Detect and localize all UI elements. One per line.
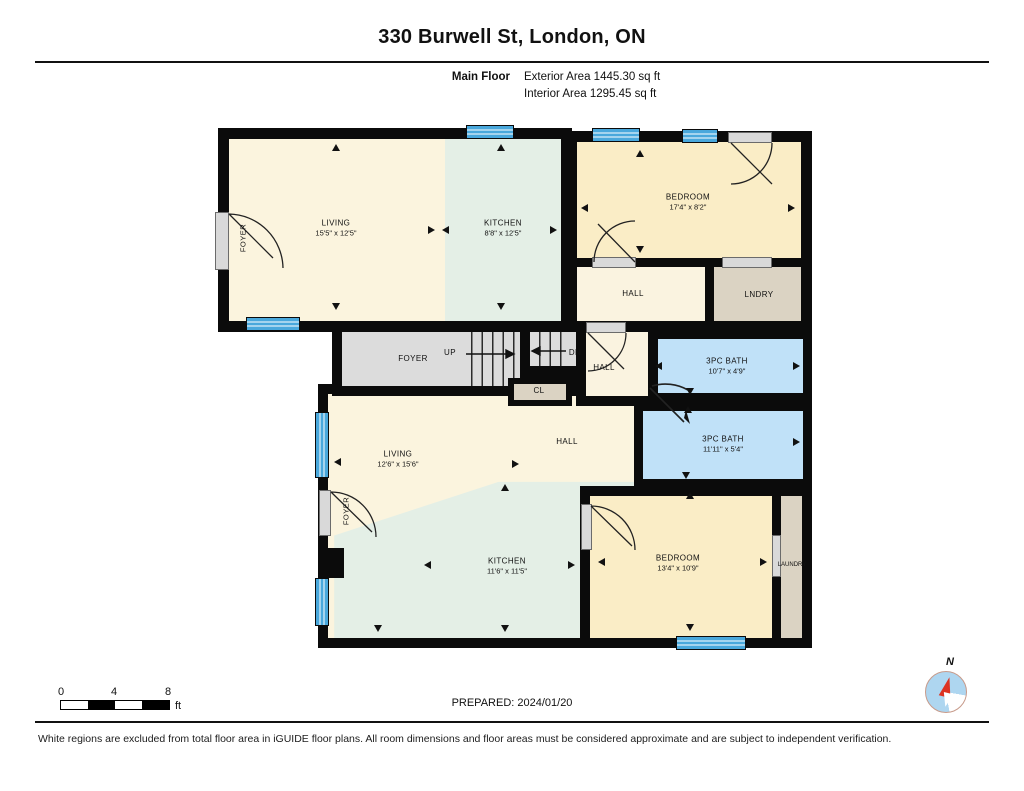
room-label: LIVING15'5" x 12'5" [315,218,356,237]
room-label: HALL [593,363,615,373]
compass-dial [925,671,967,713]
door-icon [586,322,626,333]
room-label: LIVING12'6" x 15'6" [377,449,418,468]
window-icon [315,412,329,478]
door-icon [592,257,636,268]
door-icon [581,504,592,550]
stairs-down-label: DN [569,348,581,358]
window-icon [676,636,746,650]
room-label: BEDROOM17'4" x 8'2" [666,192,710,211]
room-label: 3PC BATH10'7" x 4'9" [706,356,748,375]
room-label: HALL [556,437,578,447]
room-label: FOYER [398,354,428,364]
compass-icon: N [917,658,973,720]
window-icon [592,128,640,142]
stairs-down [530,332,570,366]
room-label: BEDROOM13'4" x 10'9" [656,553,700,572]
room-hall-mid [576,322,658,406]
room-label: FOYER [239,224,248,252]
footer-divider [35,721,989,723]
door-icon [722,257,772,268]
room-label: HALL [622,289,644,299]
header-divider [35,61,989,63]
room-label: KITCHEN8'8" x 12'5" [484,218,522,237]
room-label: FOYER [342,497,351,525]
room-label: LAUNDRY [778,562,807,568]
window-icon [315,578,329,626]
room-label: CL [533,386,544,396]
disclaimer-text: White regions are excluded from total fl… [38,733,988,745]
compass-north-label: N [946,656,954,668]
scale-bar [60,700,170,710]
interior-area: Interior Area 1295.45 sq ft [524,88,656,100]
room-label: LNDRY [745,290,774,300]
door-icon [728,132,772,143]
room-label: 3PC BATH11'11" x 5'4" [702,434,744,453]
window-icon [466,125,514,139]
exterior-area: Exterior Area 1445.30 sq ft [524,71,660,83]
window-icon [682,129,718,143]
page-title: 330 Burwell St, London, ON [0,26,1024,49]
window-icon [246,317,300,331]
floor-label: Main Floor [0,71,510,83]
stairs-up-label: UP [444,348,456,358]
floorplan-page: 330 Burwell St, London, ON Main Floor Ex… [0,0,1024,791]
room-label: KITCHEN11'6" x 11'5" [487,556,527,575]
door-icon [215,212,229,270]
compass-needle-south-icon [940,692,953,708]
door-icon [319,490,331,536]
